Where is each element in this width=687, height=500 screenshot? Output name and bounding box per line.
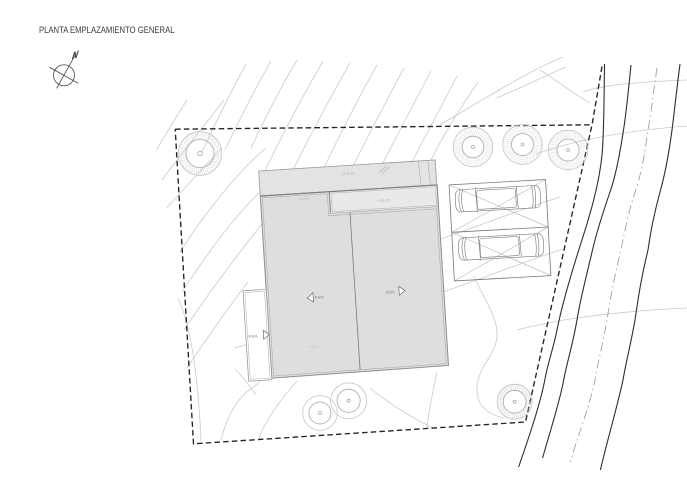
- svg-text:PLANTA EMPLAZAMIENTO GENERAL: PLANTA EMPLAZAMIENTO GENERAL: [39, 25, 175, 36]
- svg-text:+313.9: +313.9: [308, 345, 319, 350]
- svg-text:+314.6: +314.6: [298, 197, 309, 202]
- svg-text:+315.20: +315.20: [377, 198, 390, 203]
- svg-text:P.5%: P.5%: [315, 294, 325, 300]
- svg-text:P.5%: P.5%: [386, 289, 396, 295]
- svg-text:+316.40: +316.40: [341, 172, 354, 177]
- svg-text:P.5%: P.5%: [248, 333, 258, 339]
